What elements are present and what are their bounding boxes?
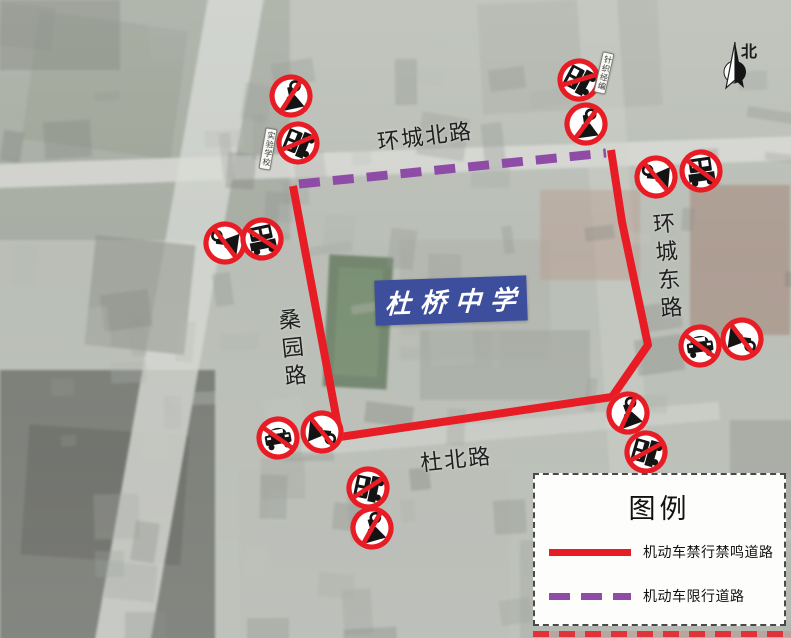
legend-dashed-purple-line bbox=[549, 593, 631, 600]
sign-no-cars-icon bbox=[676, 322, 725, 371]
sign-no-horn-icon bbox=[265, 70, 316, 121]
sign-no-trucks-icon bbox=[236, 213, 287, 264]
cropped-red-dashed-line bbox=[533, 631, 791, 637]
legend-item-limited: 机动车限行道路 bbox=[549, 586, 784, 606]
sign-no-horn-icon bbox=[562, 100, 611, 149]
legend-item-label: 机动车禁行禁鸣道路 bbox=[643, 542, 774, 562]
sign-no-trucks-icon bbox=[342, 462, 393, 513]
legend-title: 图例 bbox=[535, 487, 784, 526]
sign-no-trucks-icon bbox=[677, 147, 726, 196]
north-label: 北 bbox=[741, 38, 757, 62]
limited-route-line bbox=[299, 153, 606, 184]
sign-no-cars-icon bbox=[253, 413, 303, 463]
sign-no-horn-icon bbox=[718, 315, 767, 364]
sign-no-horn-icon bbox=[633, 154, 680, 201]
sign-no-trucks-icon bbox=[270, 115, 326, 171]
legend-box: 图例 机动车禁行禁鸣道路 机动车限行道路 bbox=[533, 473, 786, 626]
school-name-text: 杜桥中学 bbox=[376, 279, 526, 321]
legend-solid-red-line bbox=[549, 549, 631, 556]
legend-item-no-entry-no-horn: 机动车禁行禁鸣道路 bbox=[549, 542, 784, 562]
sign-no-horn-icon bbox=[345, 501, 398, 554]
map-canvas: 环城北路 环城东路 桑园路 杜北路 杜桥中学 实验学校 针织经编 北 图例 机动… bbox=[0, 0, 791, 638]
school-name-plate: 杜桥中学 bbox=[374, 275, 527, 325]
legend-item-label: 机动车限行道路 bbox=[643, 586, 745, 606]
